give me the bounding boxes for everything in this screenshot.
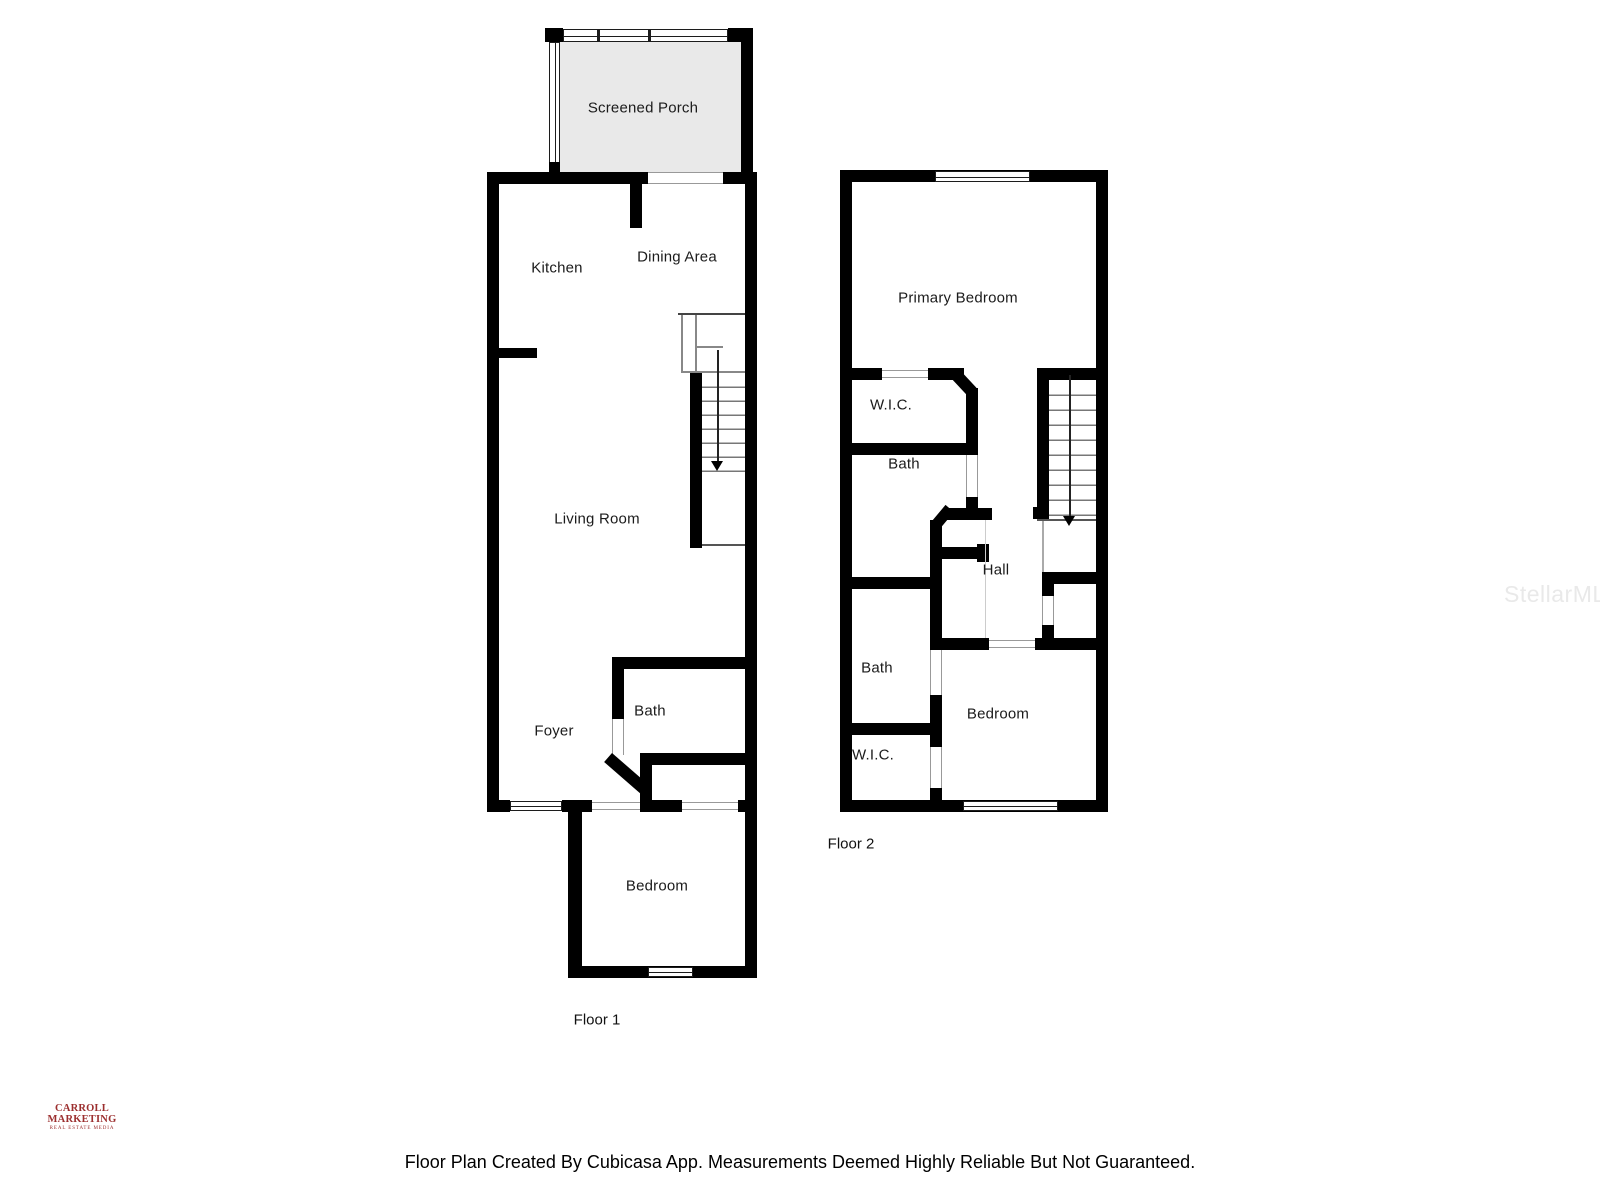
stair-wall xyxy=(1037,368,1108,380)
stair-wall xyxy=(1033,507,1049,519)
wall-segment xyxy=(930,788,942,812)
window xyxy=(935,171,1030,182)
wall-segment xyxy=(1042,572,1096,584)
room-label-dining-area: Dining Area xyxy=(637,249,717,266)
wall-segment xyxy=(568,800,582,978)
room-label-bath-upper: Bath xyxy=(888,456,920,473)
landing-boundary-line xyxy=(1042,521,1044,573)
stair-winder-line xyxy=(681,315,683,373)
room-label-kitchen: Kitchen xyxy=(531,260,582,277)
stair-landing-line xyxy=(702,544,745,546)
mls-watermark: StellarMLS xyxy=(1504,581,1600,608)
stair-wall xyxy=(1037,380,1049,512)
window xyxy=(549,42,560,164)
wall-segment xyxy=(499,348,537,358)
room-label-primary-bedroom: Primary Bedroom xyxy=(898,290,1018,307)
wall-segment xyxy=(852,577,930,589)
floor2-caption: Floor 2 xyxy=(828,836,875,853)
room-label-hall: Hall xyxy=(983,562,1010,579)
room-label-living-room: Living Room xyxy=(554,511,640,528)
door-opening xyxy=(882,370,928,378)
stair-landing-line xyxy=(678,313,745,315)
wall-segment xyxy=(745,172,757,978)
wall-segment xyxy=(741,42,753,174)
wall-segment xyxy=(1042,584,1054,596)
wall-segment xyxy=(612,657,757,669)
disclaimer-text: Floor Plan Created By Cubicasa App. Meas… xyxy=(0,1152,1600,1173)
wall-segment xyxy=(1096,170,1108,812)
wall-segment xyxy=(1042,625,1054,638)
door-opening xyxy=(989,640,1035,648)
wall-segment xyxy=(487,172,648,184)
wall-segment xyxy=(487,172,499,812)
wall-segment xyxy=(612,669,624,719)
window-mullion xyxy=(648,30,651,41)
staircase-treads xyxy=(702,374,745,472)
stair-arrow-head-icon xyxy=(1063,516,1075,526)
door-opening xyxy=(682,802,738,810)
carroll-marketing-logo: CARROLL MARKETING REAL ESTATE MEDIA xyxy=(26,1103,138,1131)
wall-segment xyxy=(852,723,930,735)
room-label-bath-f1: Bath xyxy=(634,703,666,720)
logo-title: CARROLL MARKETING xyxy=(26,1103,138,1125)
wall-segment xyxy=(840,170,852,812)
wall-segment xyxy=(640,800,682,812)
door-opening xyxy=(930,747,942,788)
door-opening xyxy=(592,802,640,810)
stair-direction-arrow xyxy=(1069,375,1071,517)
window xyxy=(510,801,562,811)
stair-wall xyxy=(690,373,702,548)
stair-direction-arrow xyxy=(717,350,719,462)
wall-segment xyxy=(1042,638,1096,650)
window xyxy=(648,967,693,977)
room-label-screened-porch: Screened Porch xyxy=(588,100,698,117)
stair-winder-line xyxy=(695,346,723,348)
room-label-wic-lower: W.I.C. xyxy=(852,747,894,764)
room-label-foyer: Foyer xyxy=(534,723,573,740)
wall-segment xyxy=(966,388,978,445)
stair-arrow-head-icon xyxy=(711,461,723,471)
porch-opening xyxy=(648,172,723,184)
wall-segment xyxy=(630,184,642,228)
window xyxy=(563,29,728,42)
stair-winder-line xyxy=(695,315,697,373)
door-opening xyxy=(930,650,942,695)
door-opening xyxy=(966,455,978,497)
window-mullion xyxy=(597,30,600,41)
door-opening xyxy=(1042,596,1054,625)
floor-plan-canvas: { "floor1": { "label": "Floor 1", "rooms… xyxy=(0,0,1600,1200)
wall-segment xyxy=(728,28,753,42)
wall-segment xyxy=(930,695,942,747)
staircase-treads xyxy=(1049,381,1096,520)
wall-segment xyxy=(942,547,978,559)
wall-segment xyxy=(487,800,510,812)
room-label-bath-lower: Bath xyxy=(861,660,893,677)
door-opening xyxy=(612,719,624,755)
wall-segment xyxy=(930,520,942,650)
logo-subtitle: REAL ESTATE MEDIA xyxy=(26,1126,138,1131)
wall-segment xyxy=(545,28,563,42)
room-label-bedroom-f1: Bedroom xyxy=(626,878,688,895)
room-label-wic-upper: W.I.C. xyxy=(870,397,912,414)
wall-segment xyxy=(738,800,757,812)
floor1-caption: Floor 1 xyxy=(574,1012,621,1029)
hall-boundary-line xyxy=(985,520,986,638)
wall-segment xyxy=(852,443,978,455)
wall-segment xyxy=(852,368,882,380)
wall-segment xyxy=(977,544,989,562)
wall-segment xyxy=(930,638,989,650)
room-label-bedroom-f2: Bedroom xyxy=(967,706,1029,723)
window xyxy=(963,801,1058,811)
wall-segment xyxy=(640,753,757,765)
